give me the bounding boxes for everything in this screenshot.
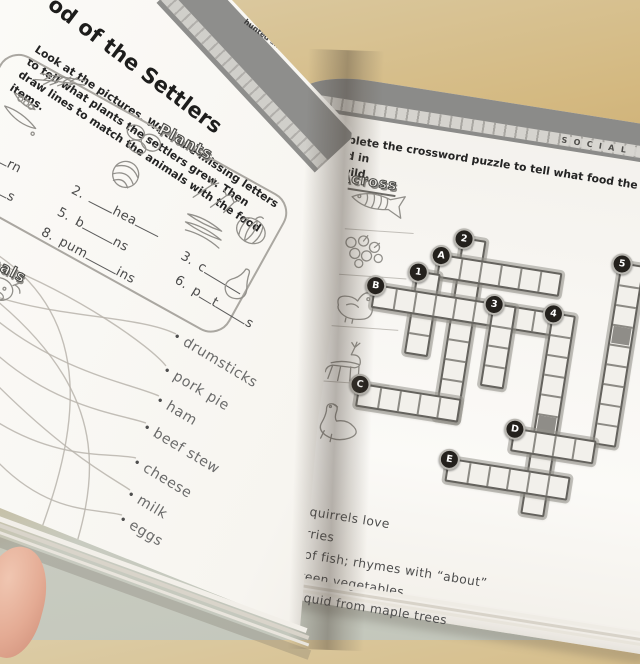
cell-separator bbox=[393, 289, 398, 309]
cell-separator bbox=[552, 436, 557, 456]
cell-separator bbox=[449, 338, 469, 343]
cell-separator bbox=[491, 325, 511, 330]
cell-separator bbox=[458, 259, 463, 279]
cell-separator bbox=[526, 472, 531, 492]
cell-separator bbox=[472, 302, 477, 322]
shaded-cell bbox=[611, 325, 631, 345]
cell-separator bbox=[597, 423, 617, 428]
cell-separator bbox=[417, 394, 422, 414]
cell-separator bbox=[531, 311, 536, 331]
cell-separator bbox=[619, 284, 639, 289]
cell-separator bbox=[436, 398, 441, 418]
cell-separator bbox=[485, 364, 505, 369]
cell-separator bbox=[409, 332, 429, 337]
crossword-word-5 bbox=[592, 262, 640, 447]
cell-separator bbox=[532, 433, 537, 453]
cell-separator bbox=[506, 469, 511, 489]
cell-separator bbox=[600, 403, 620, 408]
cell-separator bbox=[452, 299, 457, 319]
cell-separator bbox=[545, 476, 550, 496]
cell-separator bbox=[478, 262, 483, 282]
cell-separator bbox=[541, 393, 561, 398]
cell-separator bbox=[486, 466, 491, 486]
cell-separator bbox=[377, 388, 382, 408]
cell-separator bbox=[488, 345, 508, 350]
food-word: ham bbox=[153, 392, 200, 429]
cell-separator bbox=[445, 358, 465, 363]
cell-separator bbox=[537, 272, 542, 292]
cell-separator bbox=[432, 296, 437, 316]
cell-separator bbox=[442, 378, 462, 383]
cell-separator bbox=[544, 374, 564, 379]
cell-separator bbox=[551, 334, 571, 339]
cell-separator bbox=[616, 304, 636, 309]
cell-separator bbox=[397, 391, 402, 411]
cell-separator bbox=[571, 439, 576, 459]
cell-separator bbox=[604, 383, 624, 388]
cell-separator bbox=[607, 363, 627, 368]
cell-separator bbox=[547, 354, 567, 359]
cell-separator bbox=[466, 463, 471, 483]
cell-separator bbox=[498, 266, 503, 286]
cell-separator bbox=[412, 293, 417, 313]
cell-separator bbox=[517, 269, 522, 289]
